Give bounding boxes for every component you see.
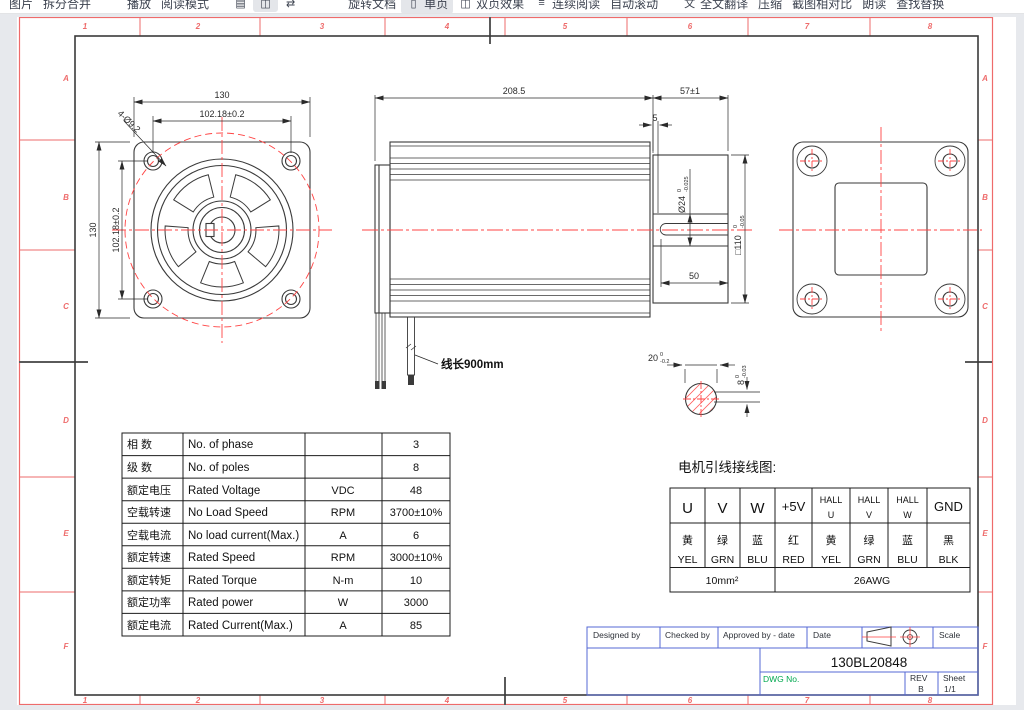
svg-text:GND: GND [934,499,963,514]
svg-text:No. of poles: No. of poles [188,462,250,474]
dim-front-bolt-h: 102.18±0.2 [200,109,245,119]
continuous-icon: ≡ [534,0,549,9]
svg-text:8: 8 [928,22,933,31]
toolbar-item-compress[interactable]: 压缩 [753,0,787,14]
zone-numbers-bottom: 12 34 56 78 [83,696,933,705]
swap-arrows-icon: ⇄ [283,0,298,10]
svg-text:0: 0 [735,375,741,378]
dim-front-bolt-v: 102.18±0.2 [111,208,121,253]
svg-text:A: A [339,530,347,542]
sheet-value: 1/1 [944,684,956,694]
toolbar-item-image[interactable]: 图片 [4,0,38,14]
spec-rows: 相 数No. of phase3 级 数No. of poles8 额定电压Ra… [127,438,442,632]
page-icon: ▤ [233,0,248,10]
svg-text:Rated power: Rated power [188,597,253,609]
label-date: Date [813,630,831,640]
svg-text:Rated Speed: Rated Speed [188,552,255,564]
svg-text:Rated Torque: Rated Torque [188,575,257,587]
svg-text:额定电流: 额定电流 [127,618,171,632]
side-view-dimensions: 208.5 57±1 5 Ø24 0 -0.025 □110 0 -0.05 5… [375,86,749,303]
toolbar-item-read-aloud[interactable]: 朗读 [857,0,891,14]
svg-text:85: 85 [410,620,422,632]
dim-square-110: □110 0 -0.05 [733,215,746,255]
svg-text:-0.2: -0.2 [660,359,669,365]
svg-text:-0.05: -0.05 [740,215,746,228]
svg-text:YEL: YEL [678,554,698,566]
svg-text:3000: 3000 [404,597,428,609]
svg-text:额定功率: 额定功率 [127,595,171,609]
dim-front-holes: 4-Ø9.2 [116,108,143,134]
wiring-gauge-left: 10mm² [706,575,739,587]
rear-view-centerlines [779,127,982,332]
svg-text:-0.025: -0.025 [684,176,690,192]
dim-step: 5 [652,113,657,123]
svg-text:□110: □110 [733,235,743,255]
toolbar-item-translate[interactable]: 文全文翻译 [677,0,753,14]
dim-body-length: 208.5 [503,86,526,96]
svg-text:黑: 黑 [943,534,954,547]
dim-key-height: 8 0 -0.03 [735,365,748,385]
svg-text:2: 2 [195,22,201,31]
svg-text:额定转矩: 额定转矩 [127,573,171,587]
svg-text:8: 8 [736,380,746,385]
svg-text:E: E [63,529,69,538]
svg-text:GRN: GRN [711,554,734,566]
svg-text:RPM: RPM [331,507,355,519]
label-checked-by: Checked by [665,630,711,640]
side-view [375,142,728,317]
svg-text:7: 7 [805,22,810,31]
toolbar-item-autoscroll[interactable]: 自动滚动 [605,0,663,14]
dwg-no-label: DWG No. [763,674,799,684]
svg-text:VDC: VDC [331,485,354,497]
svg-text:10: 10 [410,575,422,587]
svg-text:0: 0 [677,189,683,192]
swap-view-button[interactable]: ⇄ [278,0,303,12]
svg-text:D: D [63,416,69,425]
svg-text:5: 5 [563,696,568,705]
svg-text:BLU: BLU [747,554,767,566]
svg-text:额定电压: 额定电压 [127,483,171,497]
svg-text:3700±10%: 3700±10% [390,507,443,519]
double-page-icon: ◫ [458,0,473,10]
translate-icon: 文 [682,0,697,11]
svg-text:1: 1 [83,22,88,31]
title-block: Designed by Checked by Approved by - dat… [587,627,978,695]
svg-text:W: W [338,597,349,609]
svg-text:0: 0 [660,352,663,358]
svg-text:HALL: HALL [858,495,881,505]
svg-text:E: E [982,529,988,538]
svg-text:N-m: N-m [333,575,354,587]
svg-text:空载转速: 空载转速 [127,505,171,519]
fit-width-button[interactable]: ◫ [253,0,278,12]
svg-text:蓝: 蓝 [902,534,913,547]
svg-text:F: F [64,642,70,651]
svg-text:48: 48 [410,485,422,497]
svg-text:D: D [982,416,988,425]
svg-text:A: A [981,74,988,83]
dim-key-width: 20 0 -0.2 [648,352,669,365]
svg-text:8: 8 [928,696,933,705]
toolbar-item-rotate[interactable]: 旋转文档 [343,0,401,14]
svg-text:6: 6 [688,696,693,705]
svg-text:-0.03: -0.03 [742,365,748,378]
wiring-colors-cn: 黄绿 蓝红 黄绿 蓝黑 [682,533,954,547]
svg-text:No load current(Max.): No load current(Max.) [188,530,299,542]
svg-text:GRN: GRN [857,554,880,566]
svg-text:W: W [750,500,765,517]
svg-text:RED: RED [782,554,805,566]
dim-front-width: 130 [214,90,229,100]
side-view-wires: 线长900mm [375,313,504,389]
svg-text:黄: 黄 [826,533,837,547]
svg-text:Rated Voltage: Rated Voltage [188,485,260,497]
svg-text:7: 7 [805,696,810,705]
svg-text:8: 8 [413,462,419,474]
rev-value: B [918,684,924,694]
wire-length-note: 线长900mm [441,357,504,371]
part-number: 130BL20848 [831,655,908,670]
svg-text:级 数: 级 数 [127,461,152,474]
svg-text:3: 3 [413,439,419,451]
svg-text:BLU: BLU [897,554,917,566]
front-view-centerlines [112,117,332,343]
wiring-title: 电机引线接线图: [678,459,776,475]
dim-shaft-length: 57±1 [680,86,700,96]
toolbar-item-find-replace[interactable]: 查找替换 [891,0,949,14]
svg-text:黄: 黄 [682,533,693,547]
svg-text:+5V: +5V [782,499,806,514]
svg-text:W: W [903,510,912,520]
svg-text:蓝: 蓝 [752,534,763,547]
rear-view [793,142,968,317]
wiring-gauge-right: 26AWG [854,575,890,587]
toolbar-item-screenshot-compare[interactable]: 截图相对比 [787,0,857,14]
svg-text:A: A [339,620,347,632]
svg-text:V: V [866,510,872,520]
svg-text:Ø24: Ø24 [677,196,687,213]
svg-text:额定转速: 额定转速 [127,550,171,564]
svg-text:3: 3 [320,696,325,705]
svg-text:绿: 绿 [864,533,875,547]
svg-text:No. of phase: No. of phase [188,439,253,451]
svg-text:HALL: HALL [820,495,843,505]
toolbar-item-double-page[interactable]: ◫双页效果 [453,0,529,14]
svg-text:B: B [982,193,988,202]
svg-text:A: A [62,74,69,83]
spec-table: 相 数No. of phase3 级 数No. of poles8 额定电压Ra… [122,433,450,636]
svg-text:相 数: 相 数 [127,438,152,451]
svg-text:U: U [682,500,693,517]
toolbar-item-read-mode[interactable]: 阅读模式 [156,0,214,14]
key-section-detail: 20 0 -0.2 8 0 -0.03 [648,352,760,422]
svg-text:C: C [63,302,69,311]
toolbar-item-continuous[interactable]: ≡连续阅读 [529,0,605,14]
toolbar-item-split-merge[interactable]: 拆分合并 [38,0,96,14]
reader-toolbar: 图片 拆分合并 播放 阅读模式 ▤ ◫ ⇄ 旋转文档 ▯单页 ◫双页效果 ≡连续… [0,0,1024,14]
label-scale: Scale [939,630,961,640]
rev-label: REV [910,673,928,683]
svg-text:3: 3 [320,22,325,31]
front-view-dimensions: 130 102.18±0.2 130 102.18±0.2 4-Ø9.2 [88,90,310,318]
svg-text:2: 2 [195,696,201,705]
svg-text:3000±10%: 3000±10% [390,552,443,564]
svg-text:B: B [63,193,69,202]
dim-front-height: 130 [88,222,98,237]
svg-text:20: 20 [648,353,658,363]
drawing-page: 12 34 56 78 12 34 56 78 AB CD EF AB CD E… [17,17,1016,705]
svg-text:V: V [717,500,727,517]
wiring-diagram: 电机引线接线图: U V W +5V HALLU HALLV HALLW GND… [670,459,970,592]
svg-text:HALL: HALL [896,495,919,505]
svg-text:RPM: RPM [331,552,355,564]
svg-text:4: 4 [444,22,450,31]
svg-text:No Load Speed: No Load Speed [188,507,268,519]
svg-text:Rated Current(Max.): Rated Current(Max.) [188,620,293,632]
projection-symbol [862,627,920,647]
drawing-sheet: 12 34 56 78 12 34 56 78 AB CD EF AB CD E… [17,17,1016,705]
single-page-icon: ▯ [406,0,421,10]
wiring-colors-en: YELGRN BLURED YELGRN BLUBLK [678,554,959,566]
wiring-pins: U V W +5V HALLU HALLV HALLW GND [682,495,963,520]
svg-text:F: F [983,642,989,651]
document-canvas: 12 34 56 78 12 34 56 78 AB CD EF AB CD E… [0,14,1024,710]
svg-text:5: 5 [563,22,568,31]
svg-text:4: 4 [444,696,450,705]
label-designed-by: Designed by [593,630,641,640]
dim-key-length: 50 [689,271,699,281]
zone-numbers-top: 12 34 56 78 [83,22,933,31]
svg-text:YEL: YEL [821,554,841,566]
sheet-label: Sheet [943,673,966,683]
svg-text:U: U [828,510,835,520]
svg-text:绿: 绿 [717,533,728,547]
svg-text:6: 6 [688,22,693,31]
toolbar-item-play[interactable]: 播放 [122,0,156,14]
svg-text:BLK: BLK [939,554,959,566]
svg-text:C: C [982,302,988,311]
svg-text:红: 红 [788,534,799,547]
svg-text:0: 0 [733,225,739,228]
toolbar-item-single-page[interactable]: ▯单页 [401,0,453,14]
dim-shaft-dia: Ø24 0 -0.025 [677,176,690,213]
svg-text:1: 1 [83,696,88,705]
page-fit-button[interactable]: ▤ [228,0,253,12]
label-approved-by: Approved by - date [723,630,795,640]
fit-width-icon: ◫ [258,0,273,10]
svg-text:空载电流: 空载电流 [127,528,171,542]
svg-text:6: 6 [413,530,419,542]
